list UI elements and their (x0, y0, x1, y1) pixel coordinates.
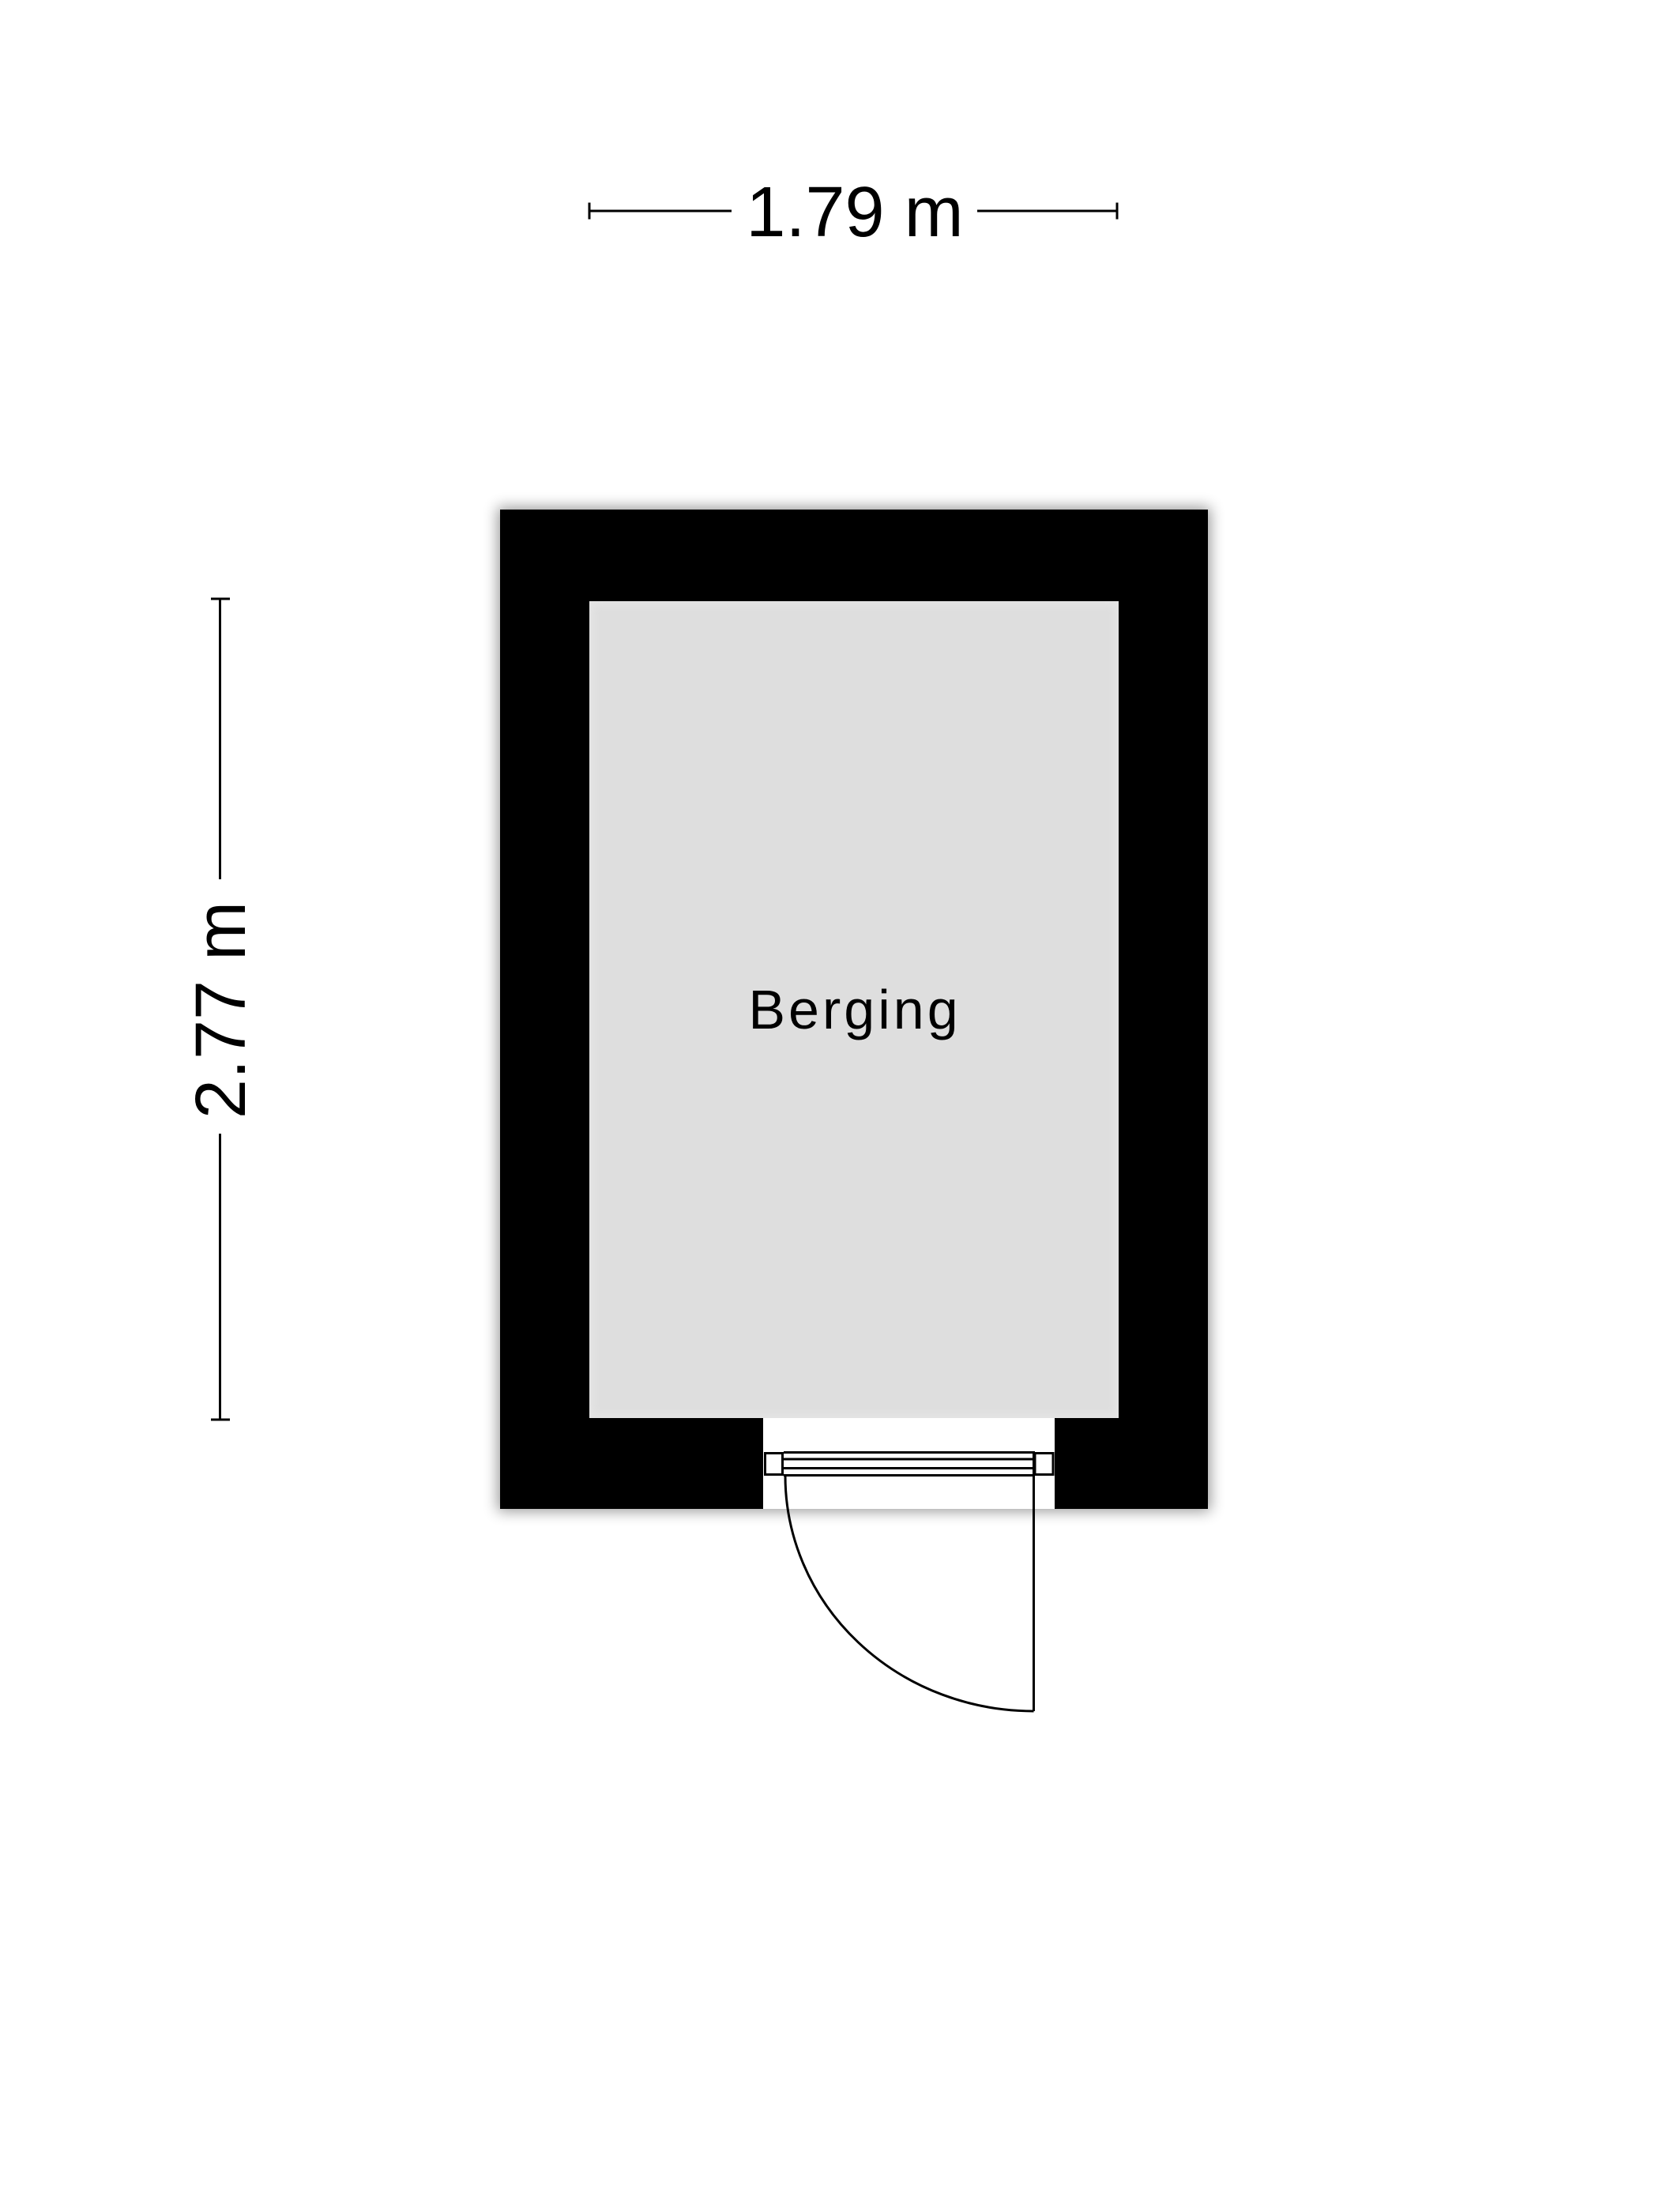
svg-text:1.79 m: 1.79 m (746, 173, 963, 252)
svg-text:Berging: Berging (748, 979, 961, 1040)
svg-text:2.77 m: 2.77 m (182, 901, 261, 1119)
